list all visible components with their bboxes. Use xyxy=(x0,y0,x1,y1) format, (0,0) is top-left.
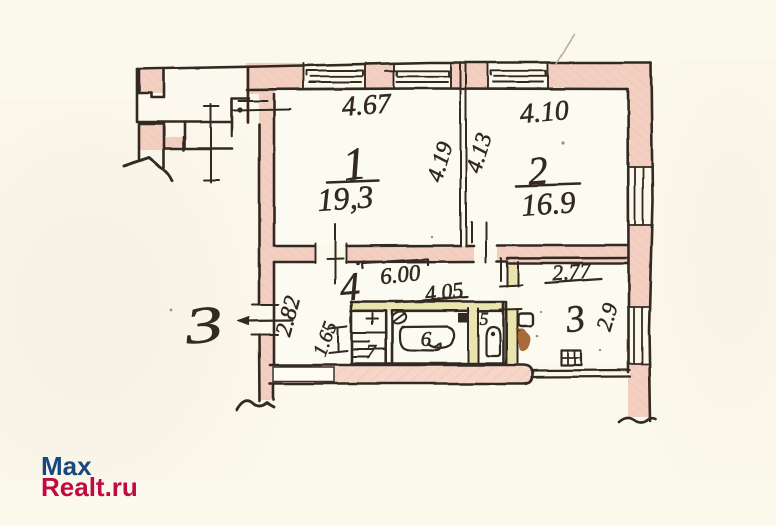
svg-text:16.9: 16.9 xyxy=(520,184,577,223)
svg-text:4.05: 4.05 xyxy=(423,277,464,307)
svg-text:4: 4 xyxy=(338,263,362,310)
svg-text:6: 6 xyxy=(421,327,432,351)
svg-text:5: 5 xyxy=(480,309,489,329)
svg-text:3: 3 xyxy=(181,295,226,357)
svg-text:4.67: 4.67 xyxy=(341,88,393,122)
svg-text:2.77: 2.77 xyxy=(551,258,592,286)
svg-text:Realt.ru: Realt.ru xyxy=(41,472,138,502)
svg-text:19,3: 19,3 xyxy=(316,178,374,218)
svg-text:6.00: 6.00 xyxy=(379,260,422,289)
svg-text:4.10: 4.10 xyxy=(519,95,571,130)
svg-text:7: 7 xyxy=(366,341,377,363)
